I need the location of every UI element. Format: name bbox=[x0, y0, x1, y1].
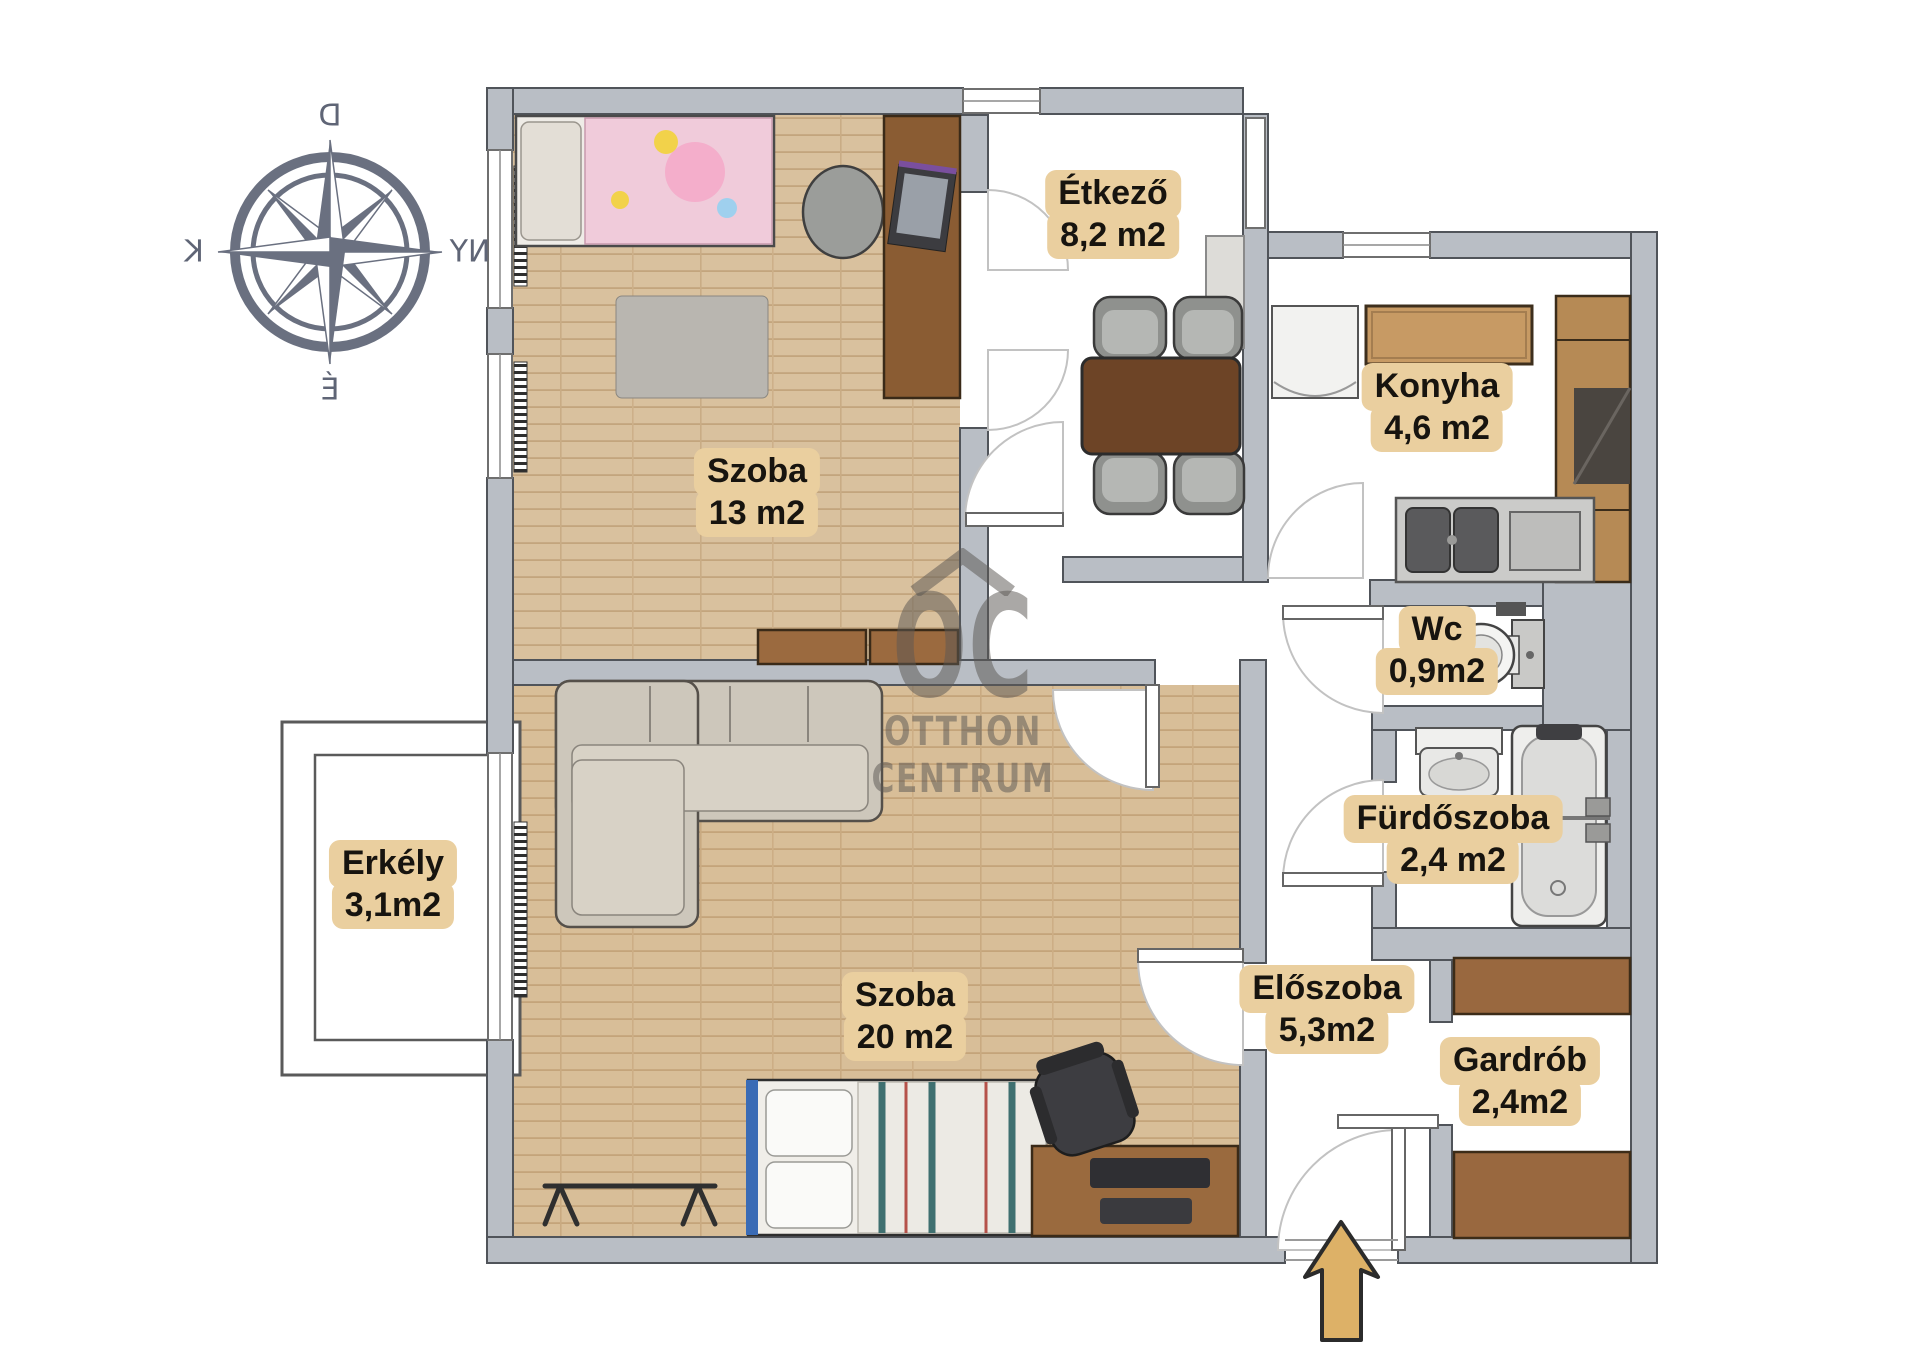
room-area: 5,3m2 bbox=[1266, 1007, 1388, 1055]
room-name: Konyha bbox=[1362, 363, 1513, 411]
door-arc-wc bbox=[1283, 613, 1383, 713]
room-area: 8,2 m2 bbox=[1047, 212, 1179, 260]
door-arc-szoba13-lower bbox=[988, 350, 1068, 430]
sink-counter bbox=[1396, 498, 1594, 582]
room-name: Fürdőszoba bbox=[1344, 795, 1563, 843]
room-label-wc: Wc 0,9m2 bbox=[1376, 606, 1498, 695]
room-name: Wc bbox=[1399, 606, 1476, 654]
tub-faucet bbox=[1586, 798, 1610, 816]
compass-label-south: D bbox=[318, 99, 341, 134]
room-label-szoba13: Szoba 13 m2 bbox=[694, 448, 820, 537]
room-label-gardrob: Gardrób 2,4m2 bbox=[1440, 1037, 1600, 1126]
dresser bbox=[758, 630, 958, 664]
double-bed bbox=[746, 1080, 1046, 1235]
door-leaf-gardrob bbox=[1338, 1115, 1438, 1128]
door-leaf-szoba20-side bbox=[1138, 949, 1243, 962]
stove bbox=[1510, 512, 1580, 570]
door-leaf-szoba20-top bbox=[1146, 685, 1159, 787]
room-name: Étkező bbox=[1045, 170, 1181, 218]
laptop bbox=[888, 160, 957, 251]
fridge bbox=[1272, 306, 1358, 398]
bed-headboard bbox=[746, 1080, 758, 1235]
door-leaf-wc bbox=[1283, 606, 1383, 619]
room-area: 4,6 m2 bbox=[1371, 405, 1503, 453]
room-label-erkely: Erkély 3,1m2 bbox=[329, 840, 457, 929]
room-label-etkezo: Étkező 8,2 m2 bbox=[1045, 170, 1181, 259]
room-area: 2,4 m2 bbox=[1387, 837, 1519, 885]
cistern-item bbox=[1496, 602, 1526, 616]
room-name: Szoba bbox=[694, 448, 820, 496]
window-etkezo-right bbox=[1246, 118, 1265, 228]
floor-plan-drawing bbox=[0, 0, 1920, 1357]
counter-top bbox=[1366, 306, 1532, 364]
room-area: 2,4m2 bbox=[1459, 1079, 1581, 1127]
tub-pillow bbox=[1536, 724, 1582, 740]
furniture-etkezo bbox=[1082, 236, 1244, 514]
keyboard bbox=[1100, 1198, 1192, 1224]
room-area: 13 m2 bbox=[696, 490, 818, 538]
compass-label-west: NY bbox=[450, 235, 491, 270]
sink-basin bbox=[1406, 508, 1450, 572]
room-label-furdoszoba: Fürdőszoba 2,4 m2 bbox=[1344, 795, 1563, 884]
compass-label-east: K bbox=[184, 235, 204, 270]
bathroom-sink bbox=[1416, 728, 1502, 796]
door-leaf-entrance bbox=[1392, 1128, 1405, 1250]
room-name: Gardrób bbox=[1440, 1037, 1600, 1085]
child-bed bbox=[516, 116, 774, 246]
wardrobe-shelf-top bbox=[1454, 958, 1630, 1014]
sink-basin bbox=[1454, 508, 1498, 572]
room-name: Előszoba bbox=[1239, 965, 1414, 1013]
desk-chair bbox=[803, 166, 883, 258]
room-label-konyha: Konyha 4,6 m2 bbox=[1362, 363, 1513, 452]
compass-rose-icon bbox=[218, 140, 442, 364]
door-arc-konyha bbox=[1268, 483, 1363, 578]
wardrobe-shelf-bottom bbox=[1454, 1152, 1630, 1238]
room-area: 0,9m2 bbox=[1376, 648, 1498, 696]
door-leaf-etkezo bbox=[966, 513, 1063, 526]
room-label-eloszoba: Előszoba 5,3m2 bbox=[1239, 965, 1414, 1054]
desk bbox=[884, 116, 960, 398]
room-name: Erkély bbox=[329, 840, 457, 888]
room-label-szoba20: Szoba 20 m2 bbox=[842, 972, 968, 1061]
compass-label-north: É bbox=[321, 373, 340, 408]
room-name: Szoba bbox=[842, 972, 968, 1020]
room-area: 20 m2 bbox=[844, 1014, 966, 1062]
floor-plan-canvas: D K NY É OC OTTHON CENTRUM Szoba 13 m2 É… bbox=[0, 0, 1920, 1357]
rug bbox=[616, 296, 768, 398]
room-area: 3,1m2 bbox=[332, 882, 454, 930]
monitor bbox=[1090, 1158, 1210, 1188]
dining-table bbox=[1082, 358, 1240, 454]
